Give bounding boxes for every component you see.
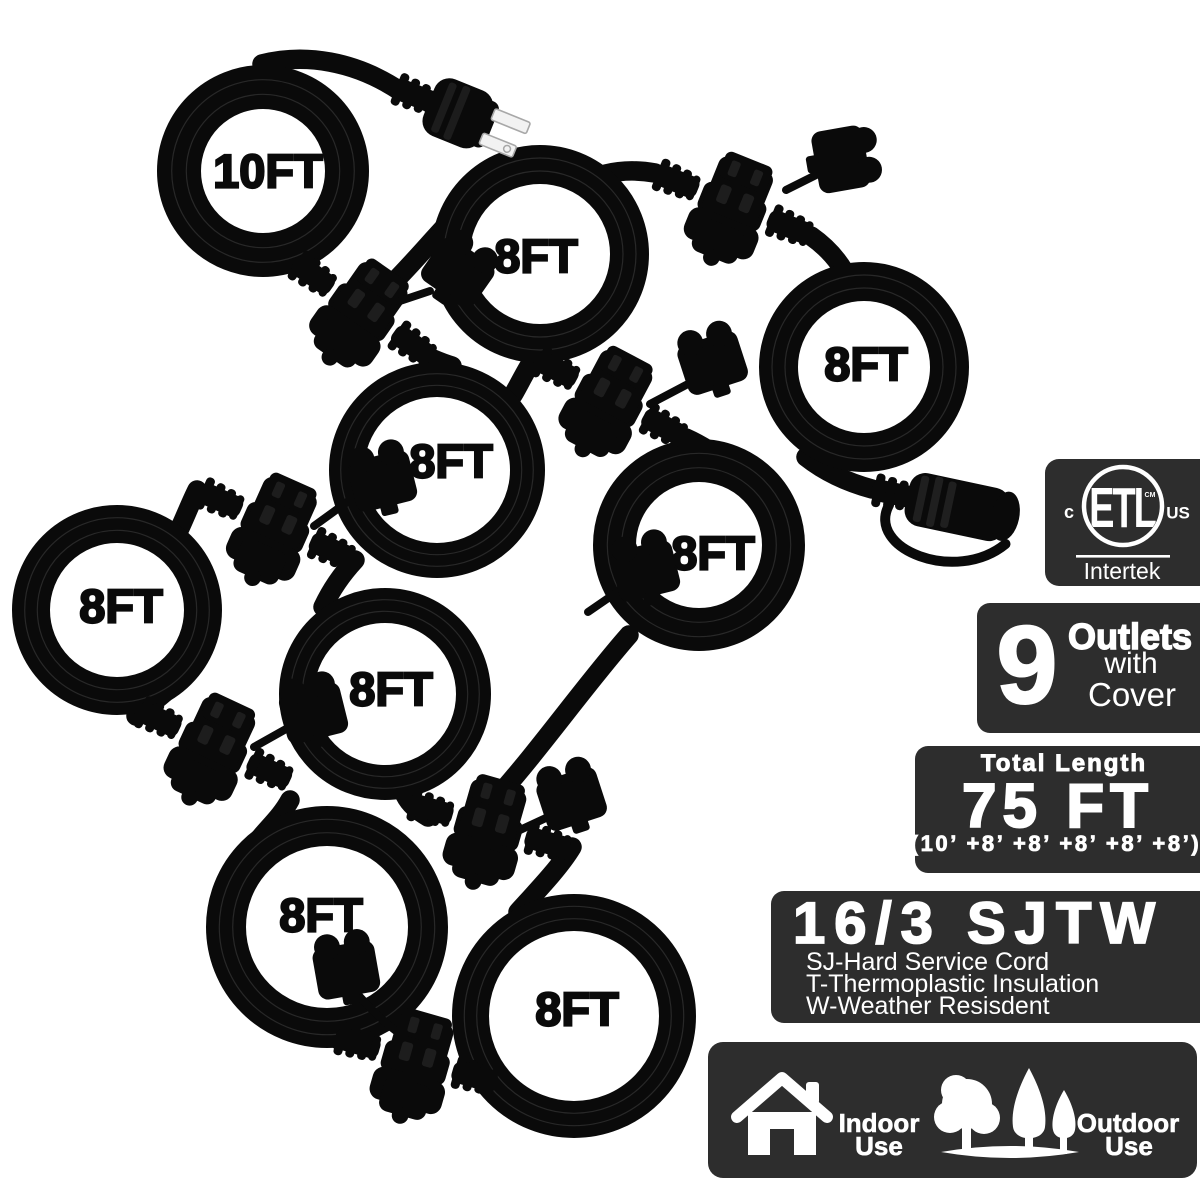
svg-text:W-Weather Resisdent: W-Weather Resisdent — [806, 992, 1050, 1020]
svg-text:US: US — [1166, 504, 1190, 523]
svg-text:ETL: ETL — [1089, 476, 1156, 540]
svg-text:8FT: 8FT — [349, 663, 433, 716]
svg-text:(10’ +8’ +8’ +8’ +8’ +8’): (10’ +8’ +8’ +8’ +8’ +8’) — [911, 831, 1200, 856]
svg-text:10FT: 10FT — [213, 145, 323, 198]
svg-text:Use: Use — [855, 1131, 903, 1161]
svg-text:8FT: 8FT — [279, 889, 363, 942]
svg-text:Cover: Cover — [1088, 676, 1176, 713]
svg-text:Use: Use — [1105, 1131, 1153, 1161]
svg-text:8FT: 8FT — [535, 983, 619, 1036]
svg-text:c: c — [1064, 502, 1074, 522]
svg-text:9: 9 — [996, 604, 1057, 727]
svg-text:16/3 SJTW: 16/3 SJTW — [793, 891, 1164, 956]
svg-text:8FT: 8FT — [79, 580, 163, 633]
svg-text:8FT: 8FT — [494, 230, 578, 283]
svg-text:8FT: 8FT — [671, 527, 755, 580]
svg-text:Intertek: Intertek — [1084, 558, 1161, 584]
svg-text:8FT: 8FT — [824, 338, 908, 391]
svg-text:CM: CM — [1145, 492, 1156, 499]
svg-text:8FT: 8FT — [409, 435, 493, 488]
